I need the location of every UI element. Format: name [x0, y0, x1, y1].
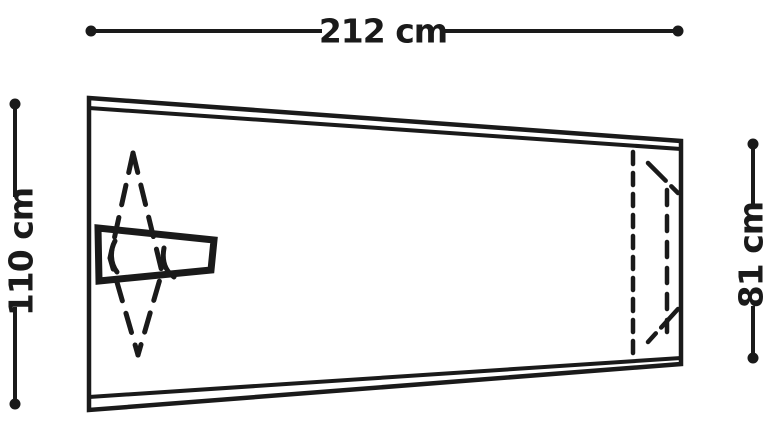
right-height-dimension-label: 81 cm: [732, 202, 768, 308]
left-diamond-dashed-outline-left-side: [110, 153, 138, 355]
dimension-drawing-canvas: 212 cm 110 cm 81 cm: [0, 0, 768, 432]
left-height-endpoint-dot-bottom: [10, 399, 21, 410]
width-dimension-endpoint-dot-left: [86, 26, 97, 37]
pocket-hidden-line-dash-left: [111, 241, 117, 272]
bottom-right-corner-dashed-diagonal: [648, 309, 678, 342]
left-diamond-dashed-outline-right-side: [133, 153, 162, 355]
left-height-dimension-label: 110 cm: [2, 188, 41, 316]
right-height-endpoint-dot-bottom: [748, 353, 759, 364]
width-dimension-label: 212 cm: [319, 12, 447, 51]
top-right-corner-dashed-diagonal: [648, 163, 678, 193]
top-hem-seam-line: [89, 108, 681, 149]
bottom-hem-seam-line: [89, 358, 681, 397]
width-dimension-endpoint-dot-right: [673, 26, 684, 37]
left-height-endpoint-dot-top: [10, 99, 21, 110]
right-height-endpoint-dot-top: [748, 139, 759, 150]
